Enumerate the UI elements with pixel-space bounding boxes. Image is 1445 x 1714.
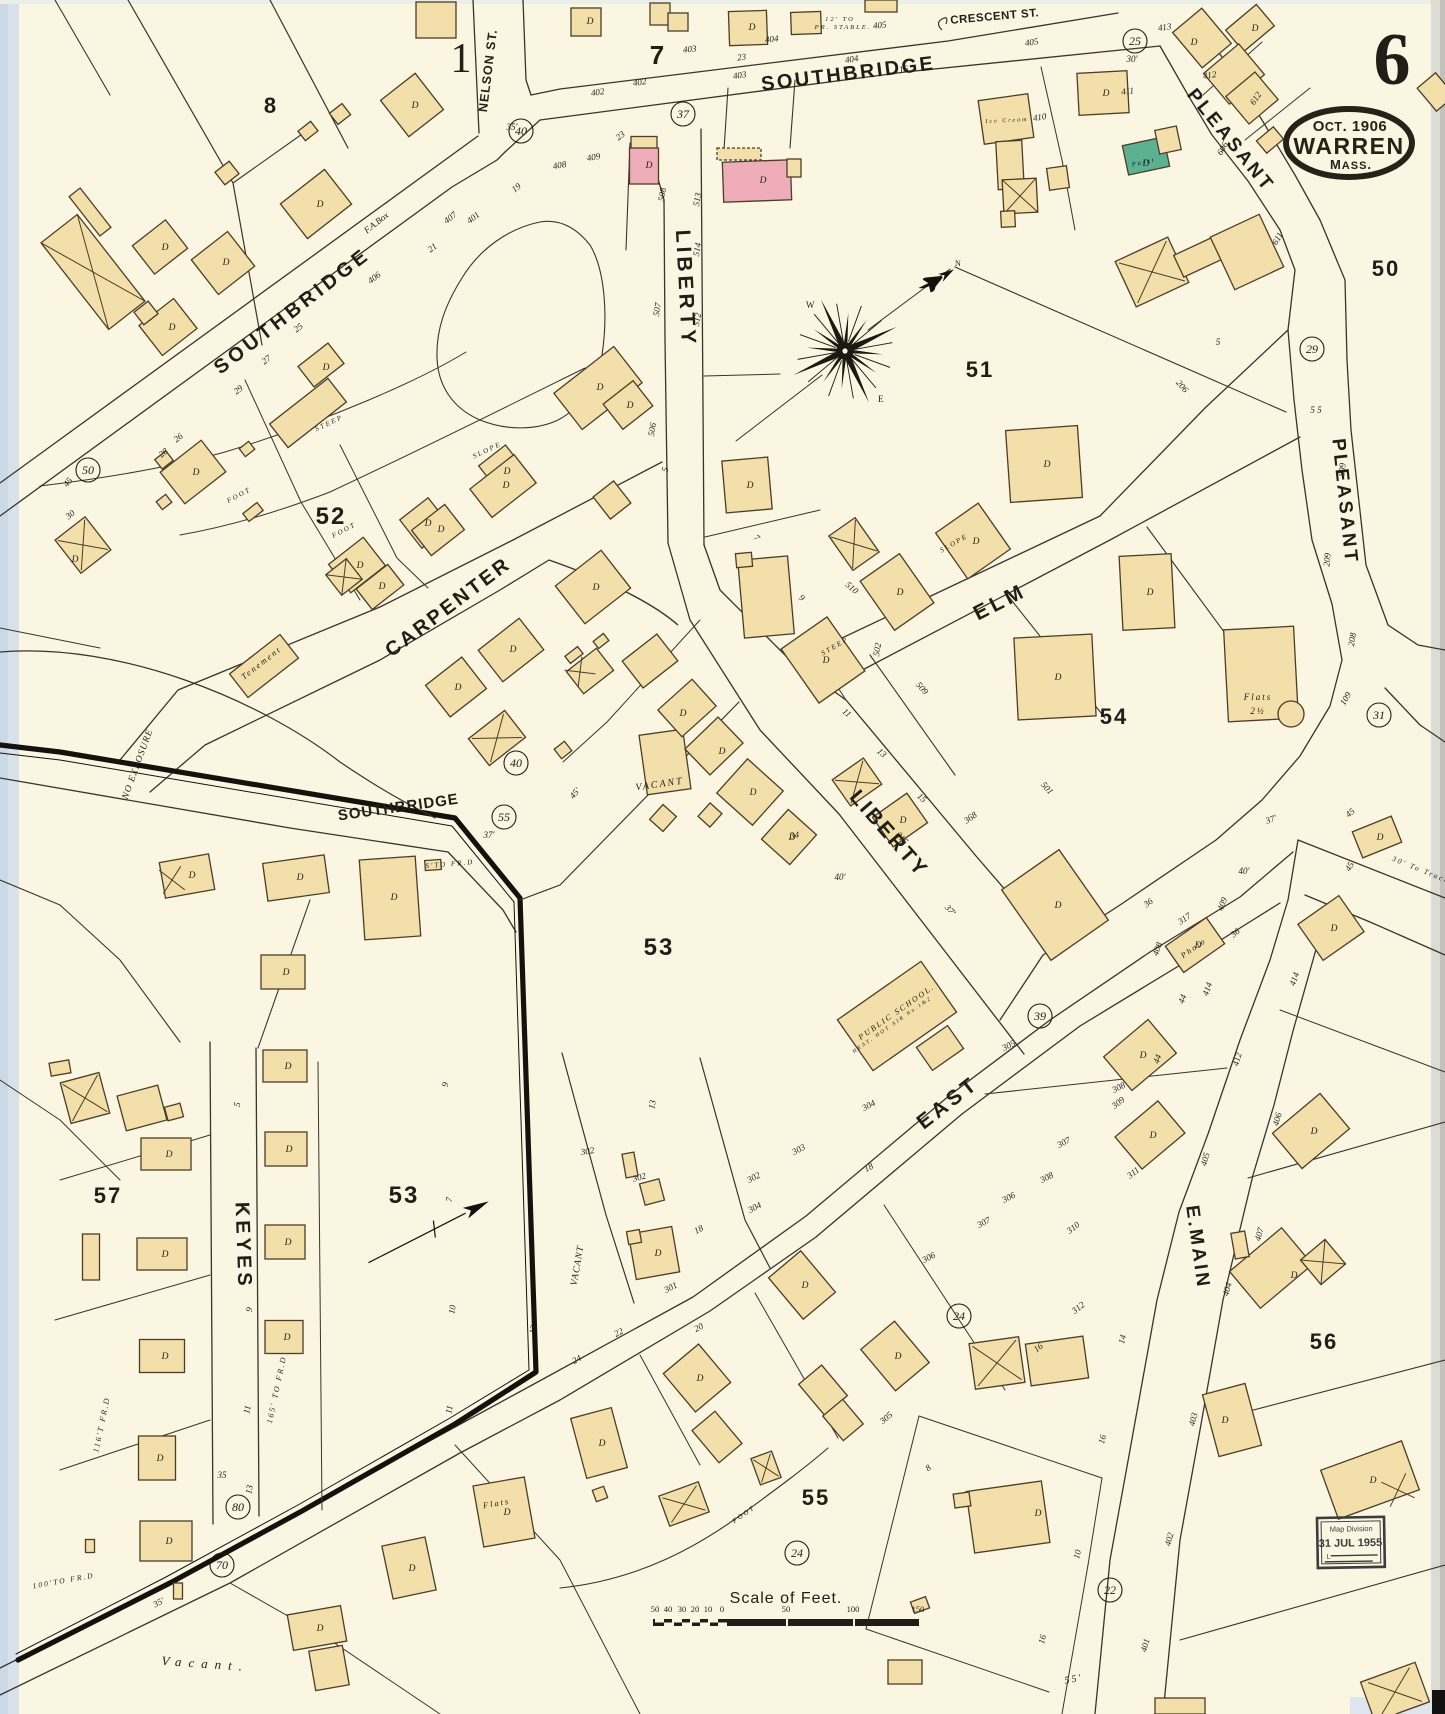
svg-text:53: 53 (644, 934, 675, 961)
svg-text:402: 402 (590, 86, 605, 98)
svg-text:D: D (168, 323, 176, 333)
svg-text:WARREN: WARREN (1293, 133, 1404, 159)
svg-text:29: 29 (1306, 342, 1318, 356)
svg-text:11: 11 (241, 1405, 252, 1415)
svg-text:30: 30 (678, 1604, 687, 1614)
svg-text:410: 410 (1032, 111, 1047, 123)
svg-text:53: 53 (389, 1182, 420, 1209)
svg-text:57: 57 (94, 1183, 122, 1208)
svg-text:80: 80 (232, 1500, 244, 1514)
svg-text:D: D (284, 1238, 292, 1248)
svg-text:D: D (222, 258, 230, 268)
svg-text:24: 24 (791, 1546, 803, 1560)
svg-text:413: 413 (1157, 21, 1172, 33)
svg-text:D: D (1369, 1476, 1377, 1486)
svg-text:D: D (378, 582, 386, 592)
svg-text:5 5: 5 5 (1310, 405, 1322, 415)
svg-text:D: D (71, 555, 79, 565)
svg-text:55: 55 (498, 810, 510, 824)
svg-text:D: D (1146, 588, 1154, 598)
svg-text:E: E (878, 394, 884, 404)
svg-text:D: D (586, 17, 594, 27)
svg-text:Flats: Flats (1243, 692, 1273, 702)
svg-text:D: D (161, 1250, 169, 1260)
svg-text:50: 50 (1372, 256, 1400, 281)
svg-text:0: 0 (720, 1604, 724, 1614)
svg-text:D: D (1221, 1416, 1229, 1426)
svg-text:D: D (454, 683, 462, 693)
svg-text:55: 55 (802, 1485, 830, 1510)
svg-text:D: D (316, 200, 324, 210)
svg-text:D: D (509, 645, 517, 655)
svg-text:25: 25 (1129, 34, 1141, 48)
svg-text:403: 403 (682, 43, 697, 54)
svg-text:D: D (356, 561, 364, 571)
svg-text:8: 8 (264, 93, 278, 118)
svg-text:D: D (285, 1145, 293, 1155)
svg-text:D: D (283, 1333, 291, 1343)
svg-text:11: 11 (443, 1405, 454, 1415)
svg-text:KEYES: KEYES (230, 1202, 255, 1291)
svg-text:N: N (955, 259, 961, 268)
svg-text:6: 6 (1374, 19, 1413, 101)
svg-text:D: D (161, 243, 169, 253)
svg-text:50: 50 (651, 1604, 660, 1614)
svg-text:150: 150 (912, 1604, 925, 1614)
svg-text:D: D (437, 525, 445, 535)
svg-text:D: D (592, 583, 600, 593)
svg-text:D: D (156, 1454, 164, 1464)
svg-text:D: D (1102, 89, 1110, 99)
svg-text:D: D (1194, 941, 1202, 951)
svg-text:403: 403 (732, 69, 747, 81)
svg-text:D: D (801, 1281, 809, 1291)
svg-text:405: 405 (872, 19, 887, 30)
svg-text:D: D (503, 467, 511, 477)
svg-text:D: D (1043, 460, 1051, 470)
svg-text:D: D (1034, 1509, 1042, 1519)
svg-text:D: D (748, 23, 756, 33)
svg-text:5: 5 (1216, 337, 1221, 347)
svg-text:MASS.: MASS. (1330, 157, 1372, 172)
svg-text:50: 50 (782, 1604, 791, 1614)
svg-text:31 JUL 1955: 31 JUL 1955 (1319, 1537, 1383, 1550)
svg-text:D: D (654, 1249, 662, 1259)
svg-text:7: 7 (650, 40, 666, 70)
svg-text:D: D (322, 363, 330, 373)
svg-text:D: D (192, 468, 200, 478)
svg-text:412: 412 (1202, 69, 1217, 81)
svg-text:D: D (746, 481, 754, 491)
svg-text:D: D (759, 176, 767, 186)
svg-text:D: D (718, 747, 726, 757)
svg-text:51: 51 (966, 357, 994, 382)
svg-text:1: 1 (451, 36, 474, 82)
svg-text:D: D (503, 1508, 511, 1518)
svg-text:D: D (408, 1564, 416, 1574)
svg-text:D: D (1330, 924, 1338, 934)
svg-text:100: 100 (847, 1604, 860, 1614)
svg-text:PR. STABLE.: PR. STABLE. (814, 24, 872, 31)
svg-text:10: 10 (704, 1604, 713, 1614)
svg-text:D: D (899, 816, 907, 826)
svg-text:D: D (502, 481, 510, 491)
svg-text:209: 209 (1321, 552, 1332, 567)
svg-text:404: 404 (764, 33, 779, 44)
svg-text:56: 56 (1310, 1329, 1338, 1354)
svg-text:2½: 2½ (1250, 706, 1265, 716)
svg-text:37: 37 (676, 107, 690, 121)
svg-text:D: D (1290, 1271, 1298, 1281)
svg-text:D: D (161, 1352, 169, 1362)
svg-text:12' TO: 12' TO (825, 16, 855, 23)
svg-text:D: D (896, 588, 904, 598)
svg-text:54: 54 (1100, 704, 1128, 729)
svg-text:20: 20 (691, 1604, 700, 1614)
svg-text:D: D (1376, 833, 1384, 843)
svg-text:402: 402 (632, 76, 647, 88)
svg-text:31: 31 (1372, 708, 1385, 722)
svg-text:D: D (894, 1352, 902, 1362)
svg-text:D: D (188, 871, 196, 881)
svg-text:40': 40' (1239, 866, 1251, 876)
svg-text:D: D (749, 788, 757, 798)
svg-text:D: D (626, 401, 634, 411)
svg-text:D: D (679, 709, 687, 719)
svg-text:L: L (1327, 1554, 1331, 1561)
svg-text:D: D (282, 968, 290, 978)
svg-text:404: 404 (844, 53, 859, 65)
svg-text:809: 809 (1336, 462, 1347, 477)
svg-text:D: D (316, 1624, 324, 1634)
svg-text:D: D (972, 537, 980, 547)
svg-text:D: D (598, 1439, 606, 1449)
svg-text:50: 50 (82, 463, 94, 477)
svg-text:35': 35' (506, 122, 519, 132)
svg-text:D: D (645, 161, 653, 171)
svg-text:D: D (1190, 38, 1198, 48)
svg-text:411: 411 (1121, 85, 1135, 97)
svg-text:D: D (284, 1062, 292, 1072)
svg-text:D: D (1054, 901, 1062, 911)
svg-text:D: D (165, 1150, 173, 1160)
svg-text:405: 405 (1024, 36, 1039, 48)
svg-text:D: D (696, 1374, 704, 1384)
svg-text:D: D (390, 893, 398, 903)
svg-text:Map Division: Map Division (1330, 1524, 1373, 1534)
svg-text:D: D (822, 656, 830, 666)
svg-text:W: W (806, 300, 815, 310)
svg-text:39: 39 (1033, 1009, 1046, 1023)
svg-text:40: 40 (664, 1604, 673, 1614)
svg-text:D: D (1142, 159, 1150, 169)
svg-text:D: D (1310, 1127, 1318, 1137)
svg-text:40': 40' (835, 872, 847, 882)
svg-text:37': 37' (483, 830, 496, 840)
svg-text:D: D (1149, 1131, 1157, 1141)
svg-text:D: D (788, 833, 796, 843)
svg-text:D: D (296, 873, 304, 883)
svg-text:22: 22 (1104, 1583, 1116, 1597)
svg-text:40: 40 (510, 756, 522, 770)
svg-text:D: D (1139, 1051, 1147, 1061)
svg-text:D: D (1251, 24, 1259, 34)
svg-text:70: 70 (216, 1558, 228, 1572)
svg-text:D: D (411, 101, 419, 111)
svg-text:D: D (1054, 673, 1062, 683)
svg-text:D: D (424, 519, 432, 529)
svg-text:D: D (596, 383, 604, 393)
svg-text:30': 30' (1126, 54, 1139, 64)
svg-text:D: D (165, 1537, 173, 1547)
svg-text:24: 24 (953, 1309, 965, 1323)
svg-text:35: 35 (217, 1470, 228, 1480)
